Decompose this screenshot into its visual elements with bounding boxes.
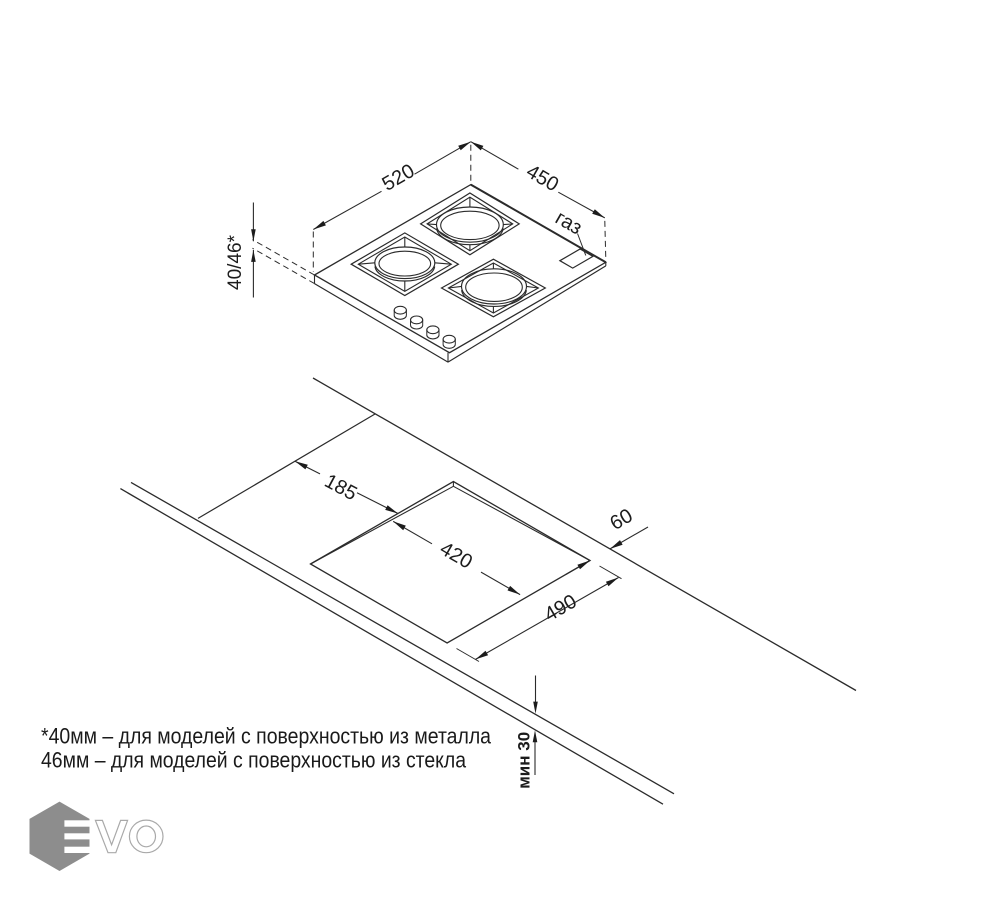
svg-text:520: 520 [379,160,419,196]
svg-text:185: 185 [321,470,361,505]
svg-text:*40мм – для моделей с поверхно: *40мм – для моделей с поверхностью из ме… [41,724,492,749]
svg-text:40/46*: 40/46* [225,234,246,290]
svg-text:490: 490 [541,590,581,626]
svg-text:60: 60 [606,505,636,535]
svg-text:420: 420 [436,538,476,574]
svg-text:мин 30: мин 30 [514,732,533,789]
svg-text:450: 450 [522,161,562,197]
svg-text:46мм – для моделей с поверхнос: 46мм – для моделей с поверхностью из сте… [41,748,467,773]
